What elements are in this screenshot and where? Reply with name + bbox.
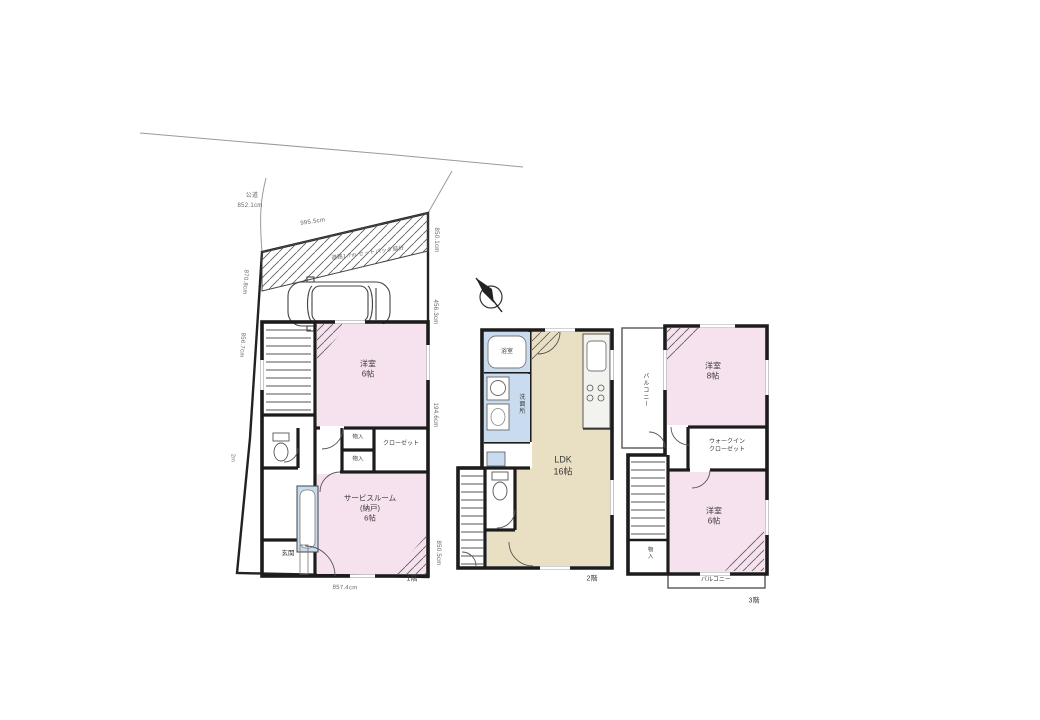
floor-label-2f: 2階 bbox=[587, 574, 598, 583]
room-label-washroom: 洗面所 bbox=[516, 394, 524, 415]
room-label-balcony-bottom: バルコニー bbox=[701, 577, 731, 585]
room-label-storage-b-1f: 物入 bbox=[352, 456, 363, 463]
dim-bottom: 857.4cm bbox=[332, 585, 357, 593]
room-label-entrance: 玄関 bbox=[282, 550, 295, 558]
north-arrow-icon bbox=[476, 278, 502, 312]
room-label-bedroom-a-3f: 洋室 8帖 bbox=[705, 362, 721, 383]
floor-label-3f: 3階 bbox=[749, 596, 760, 605]
dim-left-low: 2m bbox=[228, 454, 235, 462]
dim-right-mid: 456.3cm bbox=[430, 299, 438, 324]
floorplan-page: 公道 852.1cm 995.5cm 道路1.7m セットバック部分 850.1… bbox=[0, 0, 1040, 720]
room-label-wic: ウォークイン クローゼット bbox=[709, 439, 745, 455]
floor-label-1f: 1階 bbox=[407, 574, 418, 583]
dim-right-low: 194.6cm bbox=[430, 402, 438, 427]
room-label-ldk: LDK 16帖 bbox=[553, 454, 572, 477]
room-label-bedroom-b-3f: 洋室 6帖 bbox=[706, 507, 722, 528]
room-label-storage-a-1f: 物入 bbox=[352, 434, 363, 441]
dim-right-bottom: 850.5cm bbox=[433, 540, 441, 565]
room-label-balcony-side: バルコニー bbox=[640, 373, 648, 408]
room-label-bedroom-1f: 洋室 6帖 bbox=[360, 360, 376, 381]
room-label-service-room: サービスルーム (納戸) 6帖 bbox=[344, 493, 396, 522]
floorplan-drawing bbox=[0, 0, 1040, 720]
room-label-bath: 浴室 bbox=[501, 349, 513, 357]
road-label: 公道 bbox=[246, 193, 259, 201]
dim-right-top: 850.1cm bbox=[431, 227, 439, 252]
room-label-closet-1f: クローゼット bbox=[381, 441, 421, 449]
room-label-storage-3f: 物入 bbox=[645, 547, 652, 560]
road-width-label: 852.1cm bbox=[237, 203, 262, 211]
